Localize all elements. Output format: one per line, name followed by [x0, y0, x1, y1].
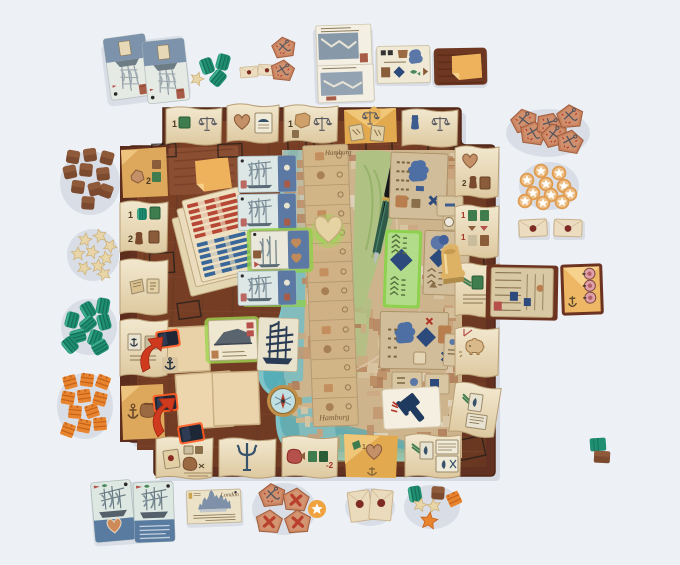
svg-text:Hamburg: Hamburg	[324, 148, 352, 157]
svg-text:2: 2	[146, 176, 151, 186]
svg-text:2: 2	[462, 179, 467, 188]
svg-text:1: 1	[172, 119, 177, 129]
svg-text:1: 1	[288, 119, 293, 129]
svg-text:1: 1	[461, 233, 466, 242]
svg-text:-2: -2	[326, 461, 334, 470]
svg-text:1: 1	[128, 210, 133, 220]
svg-text:1: 1	[362, 444, 366, 451]
svg-text:Hamburg: Hamburg	[318, 412, 350, 422]
svg-text:2: 2	[128, 234, 133, 244]
svg-text:1: 1	[461, 211, 466, 220]
